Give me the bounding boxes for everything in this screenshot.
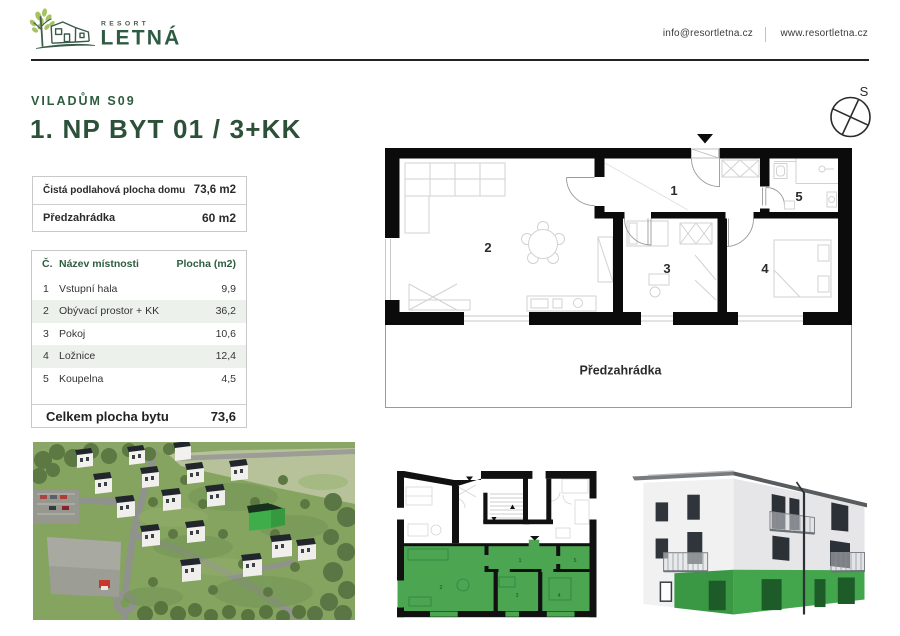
svg-text:2: 2: [484, 240, 491, 255]
svg-text:Předzahrádka: Předzahrádka: [580, 364, 663, 378]
svg-text:3: 3: [663, 261, 670, 276]
svg-text:4: 4: [558, 593, 561, 599]
svg-text:1: 1: [670, 183, 677, 198]
svg-text:5: 5: [574, 558, 577, 564]
svg-text:4: 4: [761, 261, 769, 276]
svg-text:1: 1: [519, 558, 522, 564]
svg-text:LETNÁ: LETNÁ: [101, 27, 182, 50]
svg-text:2: 2: [440, 585, 443, 591]
svg-text:5: 5: [795, 189, 802, 204]
svg-text:3: 3: [516, 593, 519, 599]
svg-text:S: S: [860, 84, 869, 99]
